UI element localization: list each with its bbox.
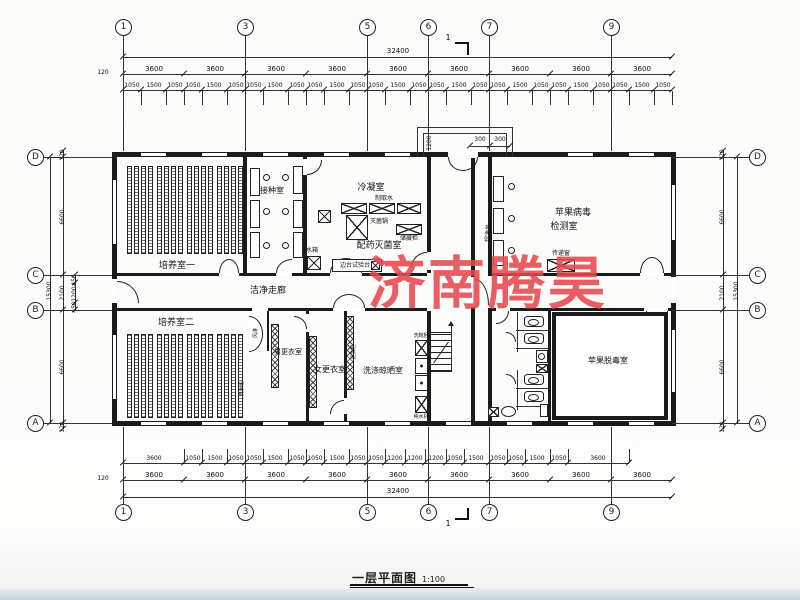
- window: [141, 152, 166, 157]
- door-arc: [506, 374, 516, 384]
- culture-rack: [231, 334, 236, 418]
- counter: [369, 203, 395, 214]
- wall: [267, 311, 269, 351]
- axis-line: [428, 427, 429, 504]
- axis-line: [672, 310, 749, 311]
- equip-label-sterilizer: 灭菌锅: [370, 217, 388, 227]
- axis-bubble-A: A: [27, 415, 44, 432]
- witness-line: [568, 449, 569, 463]
- dim-label: 3600: [507, 471, 533, 479]
- door-gap: [330, 273, 362, 276]
- door-gap: [671, 277, 676, 303]
- door-gap: [333, 308, 365, 311]
- culture-rack: [164, 166, 169, 254]
- culture-rack: [171, 334, 176, 418]
- culture-rack: [157, 166, 162, 254]
- dim-label: 15300: [733, 276, 741, 306]
- workbench: [293, 166, 303, 194]
- window: [568, 421, 593, 426]
- dim-label: 6600: [59, 202, 67, 232]
- witness-line: [550, 91, 551, 105]
- section-mark-bar: [455, 518, 469, 520]
- culture-rack: [187, 166, 192, 254]
- washer-unit: [415, 375, 428, 391]
- counter: [341, 203, 367, 214]
- dim-label: 3600: [629, 471, 655, 479]
- stool: [282, 242, 289, 249]
- culture-rack: [208, 166, 213, 254]
- witness-line: [568, 91, 569, 105]
- dim-label: 3600: [385, 471, 411, 479]
- culture-rack: [178, 334, 183, 418]
- window: [324, 421, 349, 426]
- stair-arrow-line: [451, 326, 452, 370]
- workbench: [293, 232, 303, 258]
- equip-label-air-shower: 风淋: [251, 328, 261, 338]
- axis-line: [672, 423, 749, 424]
- culture-rack: [201, 166, 206, 254]
- wall: [306, 311, 309, 314]
- door-arc: [307, 160, 322, 175]
- culture-rack: [231, 166, 236, 254]
- toilet-partition: [516, 388, 548, 389]
- door-gap: [252, 308, 268, 311]
- axis-bubble-5: 5: [359, 504, 376, 521]
- axis-line: [367, 427, 368, 504]
- section-mark-bottom: 1: [445, 520, 450, 528]
- dim-label: 6600: [719, 352, 727, 382]
- door-arc: [219, 259, 229, 273]
- culture-rack: [134, 166, 139, 254]
- culture-rack: [148, 166, 153, 254]
- culture-rack: [201, 334, 206, 418]
- equip-label-hand-wash: 洗手池: [237, 381, 247, 396]
- stool: [282, 208, 289, 215]
- window: [671, 185, 676, 240]
- axis-bubble-9: 9: [603, 504, 620, 521]
- culture-rack: [148, 334, 153, 418]
- toilet-partition: [517, 370, 518, 410]
- room-label-culture1: 培养室一: [159, 261, 195, 271]
- dim-label: 6600: [719, 202, 727, 232]
- axis-bubble-B: B: [27, 302, 44, 319]
- equip-label-bench: 边台试验台: [340, 261, 370, 271]
- toilet: [524, 391, 544, 402]
- edge-dim-bottom: 120: [97, 475, 108, 483]
- culture-rack: [178, 166, 183, 254]
- door-arc: [349, 294, 365, 308]
- door-gap: [276, 273, 292, 276]
- dim-label: 32400: [385, 47, 411, 55]
- culture-rack: [224, 166, 229, 254]
- dim-label: 3600: [446, 471, 472, 479]
- axis-line: [428, 35, 429, 151]
- witness-line: [141, 91, 142, 105]
- window: [507, 421, 532, 426]
- culture-rack: [134, 334, 139, 418]
- stool: [263, 174, 270, 181]
- witness-line: [410, 91, 411, 105]
- axis-bubble-5: 5: [359, 19, 376, 36]
- equip-label-storage: 储藏柜: [400, 234, 418, 244]
- dim-label: 120: [59, 140, 67, 170]
- culture-rack: [217, 166, 222, 254]
- witness-line: [306, 91, 307, 105]
- room-label-virus-test-1: 苹果病毒: [555, 208, 591, 218]
- wall: [243, 157, 247, 273]
- dim-label: 3600: [141, 65, 167, 73]
- dim-label: 3600: [141, 455, 167, 463]
- dim-label: 3600: [568, 471, 594, 479]
- dim-label: 2100: [719, 278, 727, 308]
- urinal: [540, 404, 548, 417]
- room-label-detox: 苹果脱毒室: [588, 356, 628, 366]
- dim-label: 3600: [629, 65, 655, 73]
- drawing-title: 一层平面图: [352, 571, 417, 585]
- equipment-box: [318, 210, 331, 223]
- axis-line: [611, 427, 612, 504]
- door-gap: [219, 273, 239, 276]
- dim-label: 3600: [324, 471, 350, 479]
- axis-bubble-A: A: [749, 415, 766, 432]
- equip-label-locker: 更衣柜: [349, 344, 359, 359]
- detox-room-wall: [552, 312, 668, 420]
- window: [629, 421, 654, 426]
- witness-line: [471, 91, 472, 105]
- dim-line: [123, 480, 672, 481]
- workbench: [250, 200, 260, 228]
- axis-line: [672, 157, 749, 158]
- section-mark-bar: [467, 42, 469, 55]
- stool: [508, 183, 515, 190]
- dim-label: 120: [719, 140, 727, 170]
- axis-line: [489, 35, 490, 151]
- dim-label: 32400: [385, 487, 411, 495]
- door-arc: [506, 332, 516, 342]
- room-label-virus-test-2: 检测室: [550, 222, 577, 232]
- culture-rack: [164, 334, 169, 418]
- window: [629, 152, 654, 157]
- washer-unit: [415, 358, 428, 374]
- witness-line: [672, 91, 673, 105]
- toilet: [524, 333, 544, 344]
- witness-line: [227, 91, 228, 105]
- window: [263, 152, 288, 157]
- dim-label: 120: [719, 412, 727, 442]
- axis-bubble-3: 3: [237, 19, 254, 36]
- dim-label: 450: [71, 292, 79, 322]
- window: [385, 421, 410, 426]
- wall: [344, 414, 347, 421]
- culture-rack: [187, 334, 192, 418]
- culture-rack: [194, 166, 199, 254]
- axis-line: [43, 275, 112, 276]
- dim-label: 15300: [46, 276, 54, 306]
- door-gap: [640, 273, 664, 276]
- axis-bubble-C: C: [27, 267, 44, 284]
- culture-rack: [141, 334, 146, 418]
- witness-line: [288, 91, 289, 105]
- room-label-men-changing: 男更衣室: [274, 347, 302, 357]
- window: [141, 421, 166, 426]
- clean-bench-unit: [493, 208, 504, 234]
- axis-bubble-C: C: [749, 267, 766, 284]
- axis-bubble-1: 1: [115, 19, 132, 36]
- dim-tick: [669, 476, 675, 482]
- window: [568, 152, 593, 157]
- toilet-partition: [516, 330, 548, 331]
- toilet-partition: [516, 348, 548, 349]
- wash-basin: [501, 406, 516, 417]
- equip-label-water-maker: 制取水: [375, 194, 393, 204]
- sterilizer-unit: [346, 215, 368, 240]
- axis-line: [123, 35, 124, 151]
- door-arc: [463, 157, 478, 171]
- workbench: [250, 232, 260, 258]
- culture-rack: [127, 166, 132, 254]
- window: [263, 421, 288, 426]
- door-arc: [117, 281, 139, 303]
- title-block: 一层平面图1:100: [352, 567, 445, 586]
- dim-label: 3600: [585, 455, 611, 463]
- dim-label: 2100: [59, 278, 67, 308]
- witness-line: [654, 91, 655, 105]
- door-arc: [448, 157, 463, 171]
- window: [324, 152, 349, 157]
- stool: [508, 215, 515, 222]
- axis-bubble-B: B: [749, 302, 766, 319]
- axis-bubble-7: 7: [481, 19, 498, 36]
- dim-label: 3600: [507, 65, 533, 73]
- workbench: [250, 168, 260, 196]
- axis-line: [123, 427, 124, 504]
- equip-label-clean-bench: 超净台: [484, 224, 494, 242]
- culture-rack: [238, 166, 243, 254]
- stool: [263, 242, 270, 249]
- floor-plan-canvas: 培养室一 接种室 冷凝室 配药灭菌室 苹果病毒 检测室 洁净走廊 培养室二 男更…: [0, 0, 800, 600]
- door-arc: [330, 400, 344, 414]
- room-label-women-changing: 女更衣室: [314, 365, 346, 375]
- equipment-box: [488, 407, 499, 417]
- stair-arrow-head: [448, 321, 454, 326]
- drawing-scale: 1:100: [422, 575, 445, 584]
- axis-bubble-9: 9: [603, 19, 620, 36]
- axis-line: [489, 427, 490, 504]
- stool: [263, 208, 270, 215]
- witness-line: [507, 91, 508, 105]
- equipment-box: [536, 364, 548, 373]
- window: [385, 152, 410, 157]
- sink: [538, 353, 545, 360]
- toilet: [524, 316, 544, 327]
- boot-washer-box: [415, 340, 428, 356]
- dim-label: 3600: [263, 471, 289, 479]
- equip-label-boot-washer: 洗靴柜: [413, 331, 428, 341]
- dim-label: 3600: [202, 65, 228, 73]
- witness-line: [593, 91, 594, 105]
- axis-bubble-D: D: [749, 149, 766, 166]
- toilet: [524, 374, 544, 385]
- window: [446, 421, 471, 426]
- room-label-condensation: 冷凝室: [357, 183, 384, 193]
- culture-rack: [208, 334, 213, 418]
- door-arc: [276, 259, 292, 273]
- axis-line: [367, 35, 368, 151]
- witness-line: [385, 91, 386, 105]
- door-arc: [652, 257, 664, 273]
- axis-bubble-6: 6: [420, 19, 437, 36]
- dim-line: [123, 57, 672, 58]
- window: [202, 152, 227, 157]
- room-label-inoculation: 接种室: [260, 186, 284, 196]
- door-arc: [640, 257, 652, 273]
- axis-line: [245, 427, 246, 504]
- culture-rack: [194, 334, 199, 418]
- dim-tick: [669, 53, 675, 59]
- door-arc: [333, 294, 349, 308]
- axis-bubble-1: 1: [115, 504, 132, 521]
- stool: [282, 174, 289, 181]
- witness-line: [446, 91, 447, 105]
- culture-rack: [238, 334, 243, 418]
- counter: [397, 203, 421, 214]
- window: [112, 335, 117, 399]
- watermark: 济南腾昊: [368, 254, 608, 314]
- culture-rack: [224, 334, 229, 418]
- axis-bubble-D: D: [27, 149, 44, 166]
- door-arc: [229, 259, 239, 273]
- axis-line: [43, 423, 112, 424]
- axis-bubble-7: 7: [481, 504, 498, 521]
- dim-tick: [669, 70, 675, 76]
- window: [112, 180, 117, 244]
- axis-line: [43, 310, 112, 311]
- door-arc: [294, 316, 307, 329]
- culture-rack: [141, 166, 146, 254]
- dim-label: 3600: [385, 65, 411, 73]
- workbench: [293, 200, 303, 228]
- photo-edge-strip: [0, 588, 800, 600]
- axis-bubble-6: 6: [420, 504, 437, 521]
- witness-line: [202, 91, 203, 105]
- dim-label: 3600: [446, 65, 472, 73]
- equip-label-water-tank: 水箱: [306, 246, 318, 256]
- culture-rack: [157, 334, 162, 418]
- dim-label: 3600: [324, 65, 350, 73]
- edge-dim-top: 120: [97, 69, 108, 77]
- axis-line: [611, 35, 612, 151]
- culture-rack: [127, 334, 132, 418]
- dim-label: 3600: [263, 65, 289, 73]
- dim-tick: [669, 493, 675, 499]
- porch-outline-inner: [423, 133, 507, 157]
- toilet-partition: [517, 312, 518, 352]
- pure-water-box: [415, 396, 428, 413]
- room-label-corridor: 洁净走廊: [250, 286, 286, 296]
- dim-line: [123, 497, 672, 498]
- witness-line: [166, 91, 167, 105]
- dim-label: 120: [59, 412, 67, 442]
- axis-line: [43, 157, 112, 158]
- clean-bench-unit: [493, 176, 504, 202]
- culture-rack: [171, 166, 176, 254]
- wall: [548, 311, 551, 421]
- witness-line: [324, 91, 325, 105]
- window: [671, 330, 676, 392]
- room-label-washing: 洗涤晾晒室: [363, 366, 403, 376]
- axis-line: [672, 275, 749, 276]
- witness-line: [629, 449, 630, 463]
- dim-label: 3600: [568, 65, 594, 73]
- dim-line: [123, 74, 672, 75]
- window: [202, 421, 227, 426]
- wall: [488, 311, 492, 421]
- room-label-medicine: 配药灭菌室: [356, 241, 401, 251]
- equip-label-pure-water: 纯水机: [413, 412, 428, 422]
- dim-label: 3600: [141, 471, 167, 479]
- witness-line: [263, 91, 264, 105]
- witness-line: [532, 91, 533, 105]
- axis-bubble-3: 3: [237, 504, 254, 521]
- witness-line: [184, 91, 185, 105]
- section-mark-top: 1: [445, 34, 450, 42]
- water-tank-box: [307, 256, 321, 270]
- dim-label: 6600: [59, 352, 67, 382]
- witness-line: [629, 91, 630, 105]
- witness-line: [349, 91, 350, 105]
- culture-rack: [217, 334, 222, 418]
- dim-label: 3600: [202, 471, 228, 479]
- axis-line: [245, 35, 246, 151]
- room-label-culture2: 培养室二: [158, 318, 194, 328]
